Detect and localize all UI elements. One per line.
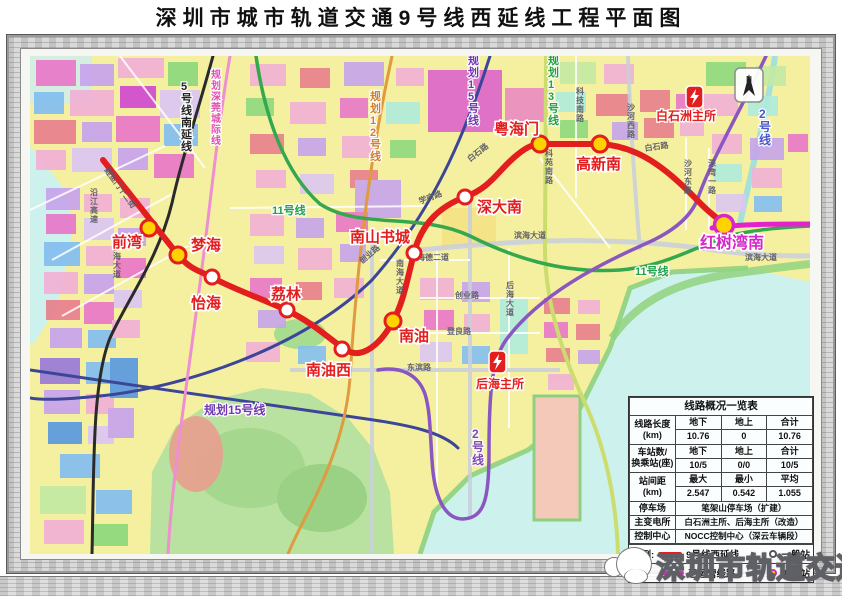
road-label: 沙河西路 <box>627 103 636 139</box>
road-label: 沙河东路 <box>684 159 693 195</box>
station-label: 荔林 <box>271 285 302 303</box>
table-value: 1.055 <box>767 487 813 501</box>
table-subhead: 合计 <box>767 416 813 430</box>
station-marker-regular <box>407 246 421 260</box>
station-label: 高新南 <box>576 155 621 173</box>
table-title: 线路概况一览表 <box>630 398 813 416</box>
road-label: 登良路 <box>446 326 472 336</box>
table-row-label: 主变电所 <box>630 515 676 529</box>
station-label: 前湾 <box>112 233 142 251</box>
rail-line-label: 11号线 <box>272 203 306 217</box>
mascot-logo-icon <box>604 543 656 589</box>
compass-n-label: N <box>746 75 752 84</box>
station-marker-regular <box>280 303 294 317</box>
station-marker-transfer <box>592 136 608 152</box>
table-value: 10/5 <box>767 458 813 472</box>
station-marker-transfer <box>170 247 186 263</box>
road-label: 科苑南路 <box>544 148 554 185</box>
station-label: 粤海门 <box>494 120 539 138</box>
table-value: 10.76 <box>767 430 813 444</box>
station-label: 怡海 <box>191 294 221 312</box>
table-subhead: 地下 <box>675 444 721 458</box>
table-row-label: 线路长度 (km) <box>630 416 676 445</box>
table-row-label: 车站数/ 换乘站(座) <box>630 444 676 473</box>
station-label: 红树湾南 <box>700 233 764 252</box>
station-label: 梦海 <box>191 236 221 254</box>
table-value: 2.547 <box>675 487 721 501</box>
station-label: 南油 <box>399 327 429 345</box>
table-subhead: 地下 <box>675 416 721 430</box>
north-compass-icon: N <box>735 68 763 102</box>
table-value: 10.76 <box>675 430 721 444</box>
rail-line-label: 规划深莞城际线 <box>211 68 221 147</box>
watermark-text: 深圳市轨道交通 <box>656 545 842 587</box>
substation-label: 后海主所 <box>476 376 524 391</box>
table-row-label: 站间距 (km) <box>630 473 676 502</box>
page-title: 深圳市城市轨道交通9号线西延线工程平面图 <box>0 0 842 34</box>
rail-line-label: 规划15号线 <box>204 402 265 417</box>
table-subhead: 最小 <box>721 473 767 487</box>
substation-label: 白石洲主所 <box>656 108 716 123</box>
road-label: 深湾一路 <box>708 158 717 195</box>
road-label: 沿江高速 <box>90 187 98 224</box>
station-label: 南山书城 <box>350 228 410 246</box>
table-subhead: 地上 <box>721 444 767 458</box>
station-marker-transfer <box>385 313 401 329</box>
road-label: 后海大道 <box>506 280 514 317</box>
road-label: 创业路 <box>454 290 480 300</box>
table-row-label: 停车场 <box>630 501 676 515</box>
station-label: 南油西 <box>306 361 351 379</box>
table-value: 白石洲主所、后海主所（改造） <box>675 515 812 529</box>
station-marker-transfer <box>532 136 548 152</box>
table-stat-head-row: 线路长度 (km)地下地上合计 <box>630 416 813 430</box>
table-stat-head-row: 站间距 (km)最大最小平均 <box>630 473 813 487</box>
station-label: 深大南 <box>477 198 522 216</box>
station-marker-regular <box>205 270 219 284</box>
station-marker-regular <box>458 190 472 204</box>
table-value: 0 <box>721 430 767 444</box>
road-label: 东滨路 <box>407 362 432 372</box>
station-marker-regular <box>335 342 349 356</box>
table-value: 0/0 <box>721 458 767 472</box>
table-value: 笔架山停车场（扩建） <box>675 501 812 515</box>
table-subhead: 合计 <box>767 444 813 458</box>
table-value: 0.542 <box>721 487 767 501</box>
table-info-row: 主变电所白石洲主所、后海主所（改造） <box>630 515 813 529</box>
table-subhead: 地上 <box>721 416 767 430</box>
table-value: 10/5 <box>675 458 721 472</box>
rail-line-label: 11号线 <box>635 264 669 278</box>
table-subhead: 平均 <box>767 473 813 487</box>
table-stat-head-row: 车站数/ 换乘站(座)地下地上合计 <box>630 444 813 458</box>
road-label: 科技南路 <box>576 86 585 123</box>
station-marker-transfer <box>141 220 157 236</box>
watermark: 深圳市轨道交通 <box>604 540 840 592</box>
table-info-row: 停车场笔架山停车场（扩建） <box>630 501 813 515</box>
road-label: 南海大道 <box>396 258 404 295</box>
road-label: 滨海大道 <box>514 230 546 240</box>
road-label: 滨海大道 <box>745 252 777 262</box>
table-subhead: 最大 <box>675 473 721 487</box>
station-marker-terminus <box>715 216 734 235</box>
page: { "header": { "title": "深圳市城市轨道交通9号线西延线工… <box>0 0 842 595</box>
